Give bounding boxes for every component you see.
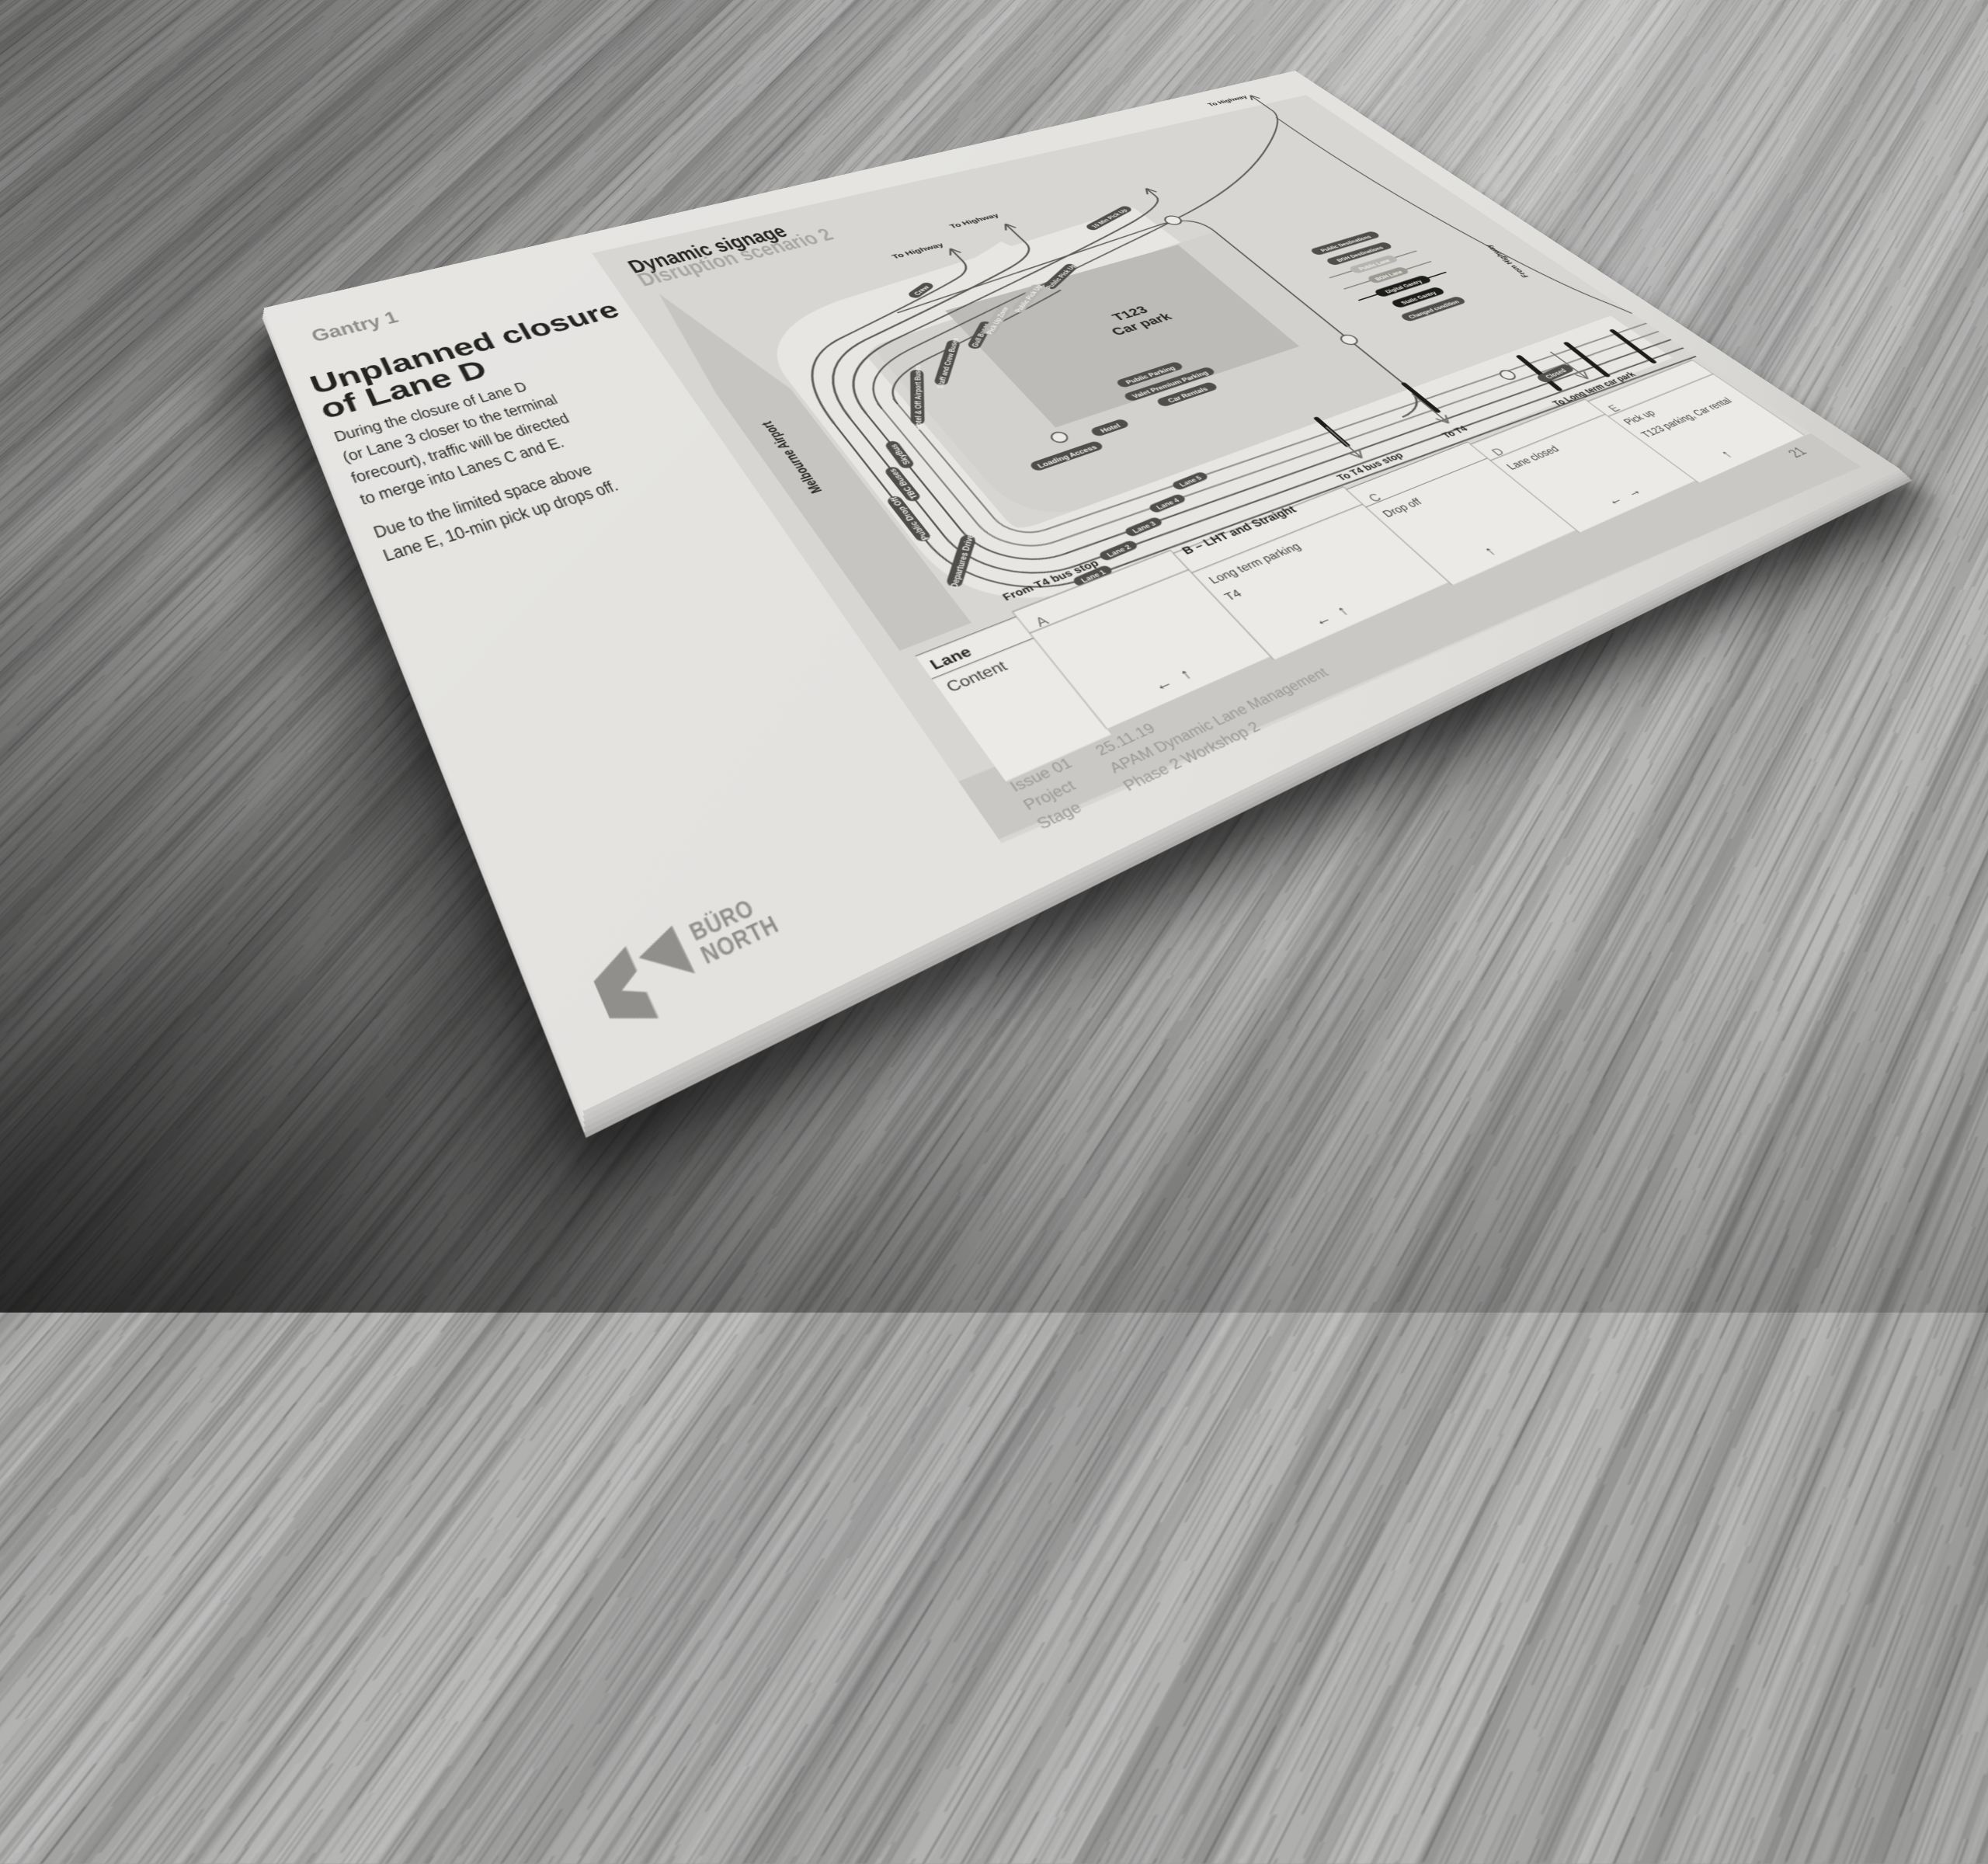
svg-text:Hotel & Off Airport Buses: Hotel & Off Airport Buses (912, 365, 923, 430)
